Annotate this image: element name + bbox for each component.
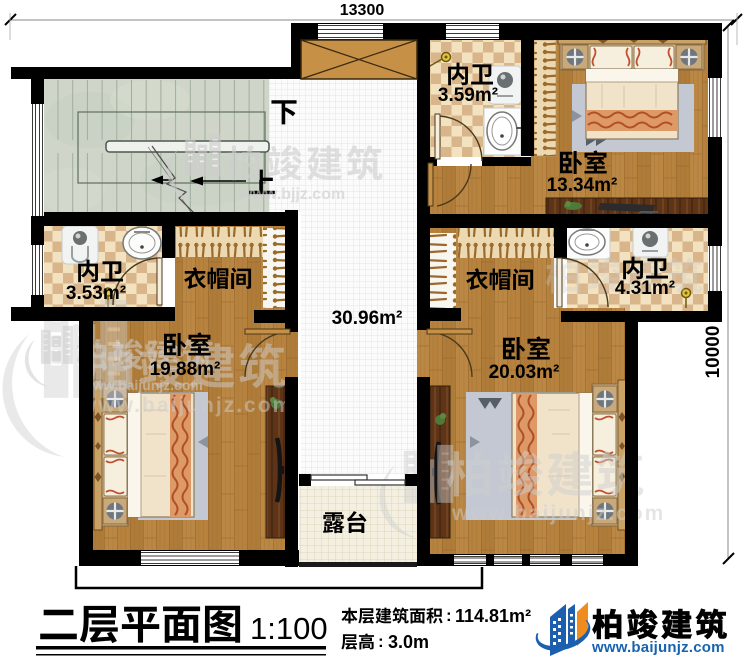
svg-text:13.34m²: 13.34m² <box>547 175 618 196</box>
svg-text:www.baijunjz.com: www.baijunjz.com <box>79 394 293 417</box>
svg-text:3.53m²: 3.53m² <box>66 283 126 304</box>
svg-text:30.96m²: 30.96m² <box>332 308 403 329</box>
svg-text::: : <box>446 606 452 625</box>
svg-text:13300: 13300 <box>340 2 385 19</box>
svg-text::: : <box>378 632 384 651</box>
svg-text:www.baijunjz.com: www.baijunjz.com <box>591 639 725 656</box>
svg-text:19.88m²: 19.88m² <box>150 359 221 380</box>
svg-text:3.0m: 3.0m <box>388 632 429 652</box>
svg-text:114.81m²: 114.81m² <box>455 606 531 626</box>
svg-text:3.59m²: 3.59m² <box>438 85 498 106</box>
svg-text:1:100: 1:100 <box>250 611 328 646</box>
svg-text:20.03m²: 20.03m² <box>489 362 560 383</box>
svg-text:www.bjjz.com: www.bjjz.com <box>239 186 345 203</box>
svg-text:10000: 10000 <box>703 326 724 379</box>
svg-text:4.31m²: 4.31m² <box>615 278 675 299</box>
